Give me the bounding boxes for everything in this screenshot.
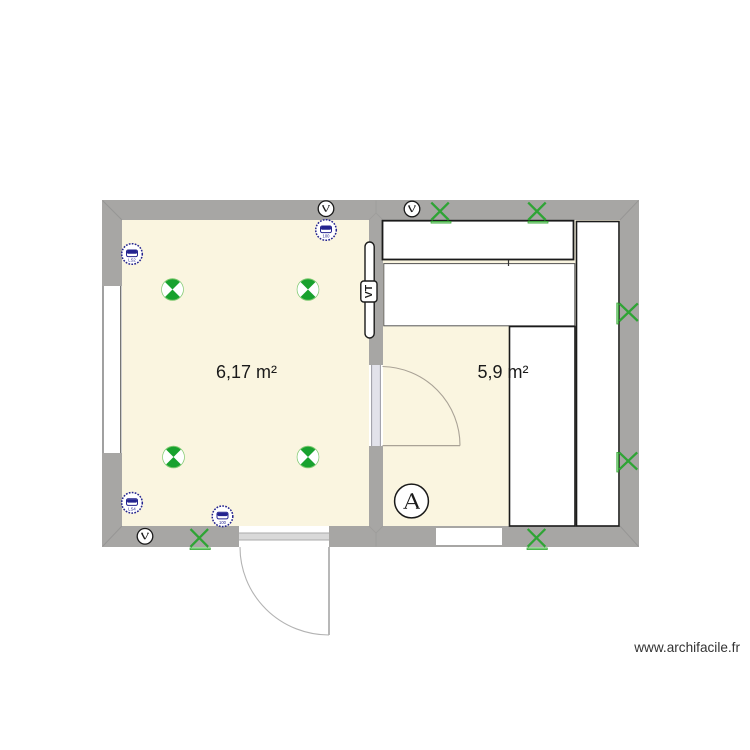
svg-text:VT: VT <box>363 284 375 298</box>
svg-text:LS4: LS4 <box>128 506 136 511</box>
svg-text:www.archifacile.fr: www.archifacile.fr <box>633 640 740 655</box>
svg-text:100: 100 <box>219 520 227 525</box>
svg-text:LS2: LS2 <box>128 258 136 263</box>
svg-text:5,9 m²: 5,9 m² <box>477 362 528 382</box>
svg-text:6,17 m²: 6,17 m² <box>216 362 277 382</box>
svg-text:100: 100 <box>323 234 331 239</box>
